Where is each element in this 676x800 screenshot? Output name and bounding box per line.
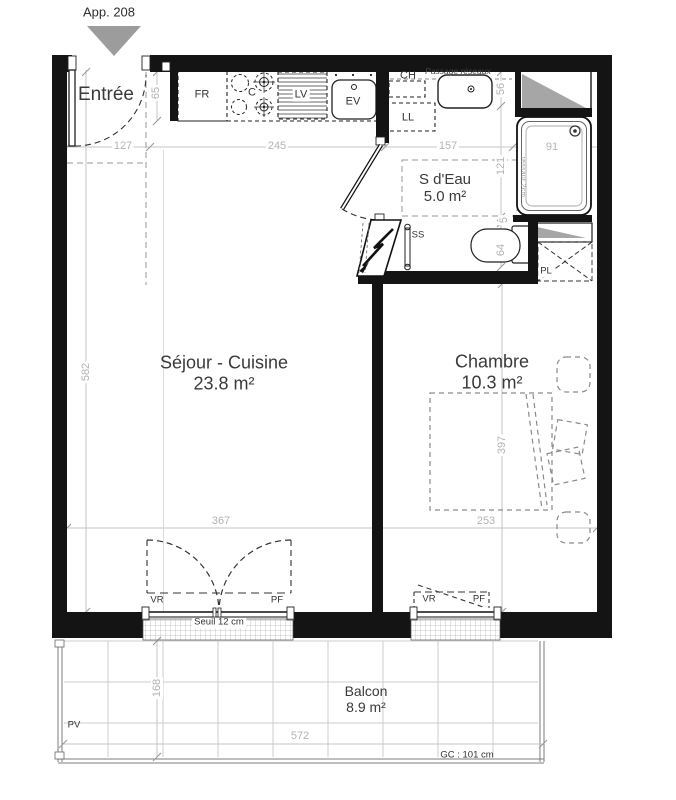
door-leaf xyxy=(69,70,75,146)
closet-label: PL xyxy=(538,267,554,278)
pillow xyxy=(553,420,588,455)
dim-245: 245 xyxy=(266,140,288,152)
door-jamb xyxy=(142,56,150,70)
shutter-label: VR xyxy=(422,595,435,606)
bathroom-door xyxy=(342,137,401,276)
threshold xyxy=(411,619,500,640)
door-hinge xyxy=(376,137,385,145)
door-jamb xyxy=(68,56,76,70)
dim-65: 65 xyxy=(150,85,162,101)
room-area: 10.3 m² xyxy=(455,372,529,393)
plan-drawing xyxy=(0,0,676,800)
room-name: S d'Eau xyxy=(419,171,471,188)
water-heater-label: CH xyxy=(400,70,416,83)
room-label-sejour: Séjour - Cuisine 23.8 m² xyxy=(160,352,288,393)
balcony-railing xyxy=(55,640,544,763)
entrance-arrow-icon xyxy=(87,26,141,56)
towel-radiator xyxy=(405,224,411,270)
washing-machine-label: LL xyxy=(402,112,414,125)
french-window-label: PF xyxy=(473,595,485,606)
door-leaf xyxy=(342,145,381,209)
passage-reseaux-label: Passage réseaux xyxy=(425,67,491,77)
apartment-number: App. 208 xyxy=(83,6,135,21)
bed xyxy=(430,393,587,510)
shower-step-label: ressaut 2cm xyxy=(519,157,526,198)
dim-121: 121 xyxy=(495,155,507,177)
dim-64: 64 xyxy=(495,242,507,258)
nightstand xyxy=(557,357,590,392)
pillow xyxy=(547,447,585,485)
dim-5: 5 xyxy=(498,215,510,225)
room-name: Séjour - Cuisine xyxy=(160,352,288,373)
threshold-label: Seuil 12 cm xyxy=(192,618,246,629)
room-name: Chambre xyxy=(455,351,529,372)
dim-397: 397 xyxy=(496,434,508,456)
french-window-label: PF xyxy=(271,596,283,607)
room-label-entree: Entrée xyxy=(78,84,134,106)
door-swing xyxy=(342,209,378,220)
pv-label: PV xyxy=(68,721,81,732)
dim-157: 157 xyxy=(437,140,459,152)
dishwasher-label: LV xyxy=(293,89,310,102)
shower xyxy=(517,117,591,215)
towel-radiator-label: SS xyxy=(412,231,425,242)
room-label-balcon: Balcon 8.9 m² xyxy=(345,683,388,715)
room-area: 8.9 m² xyxy=(345,699,388,715)
shutter-label: VR xyxy=(150,596,163,607)
duct-box-small xyxy=(533,223,592,242)
dim-91: 91 xyxy=(544,141,560,153)
nightstands xyxy=(557,357,590,543)
room-name: Balcon xyxy=(345,683,388,699)
dim-582: 582 xyxy=(80,361,92,383)
dim-367: 367 xyxy=(210,515,232,527)
dim-56: 56 xyxy=(495,81,507,97)
guardrail-label: GC : 101 cm xyxy=(440,751,493,762)
duct-box-top xyxy=(519,71,591,112)
dim-168: 168 xyxy=(151,677,163,699)
fridge-label: FR xyxy=(195,89,210,102)
sink-label: EV xyxy=(346,96,361,109)
cooktop-label: C xyxy=(248,87,256,100)
door-jamb xyxy=(162,62,170,71)
dim-127: 127 xyxy=(112,140,134,152)
room-label-sdeau: S d'Eau 5.0 m² xyxy=(419,171,471,206)
floor-plan: App. 208 Entrée Séjour - Cuisine 23.8 m²… xyxy=(0,0,676,800)
dim-572: 572 xyxy=(289,730,311,742)
room-area: 5.0 m² xyxy=(419,188,471,205)
room-label-chambre: Chambre 10.3 m² xyxy=(455,351,529,392)
dim-253: 253 xyxy=(475,515,497,527)
room-area: 23.8 m² xyxy=(160,373,288,394)
washbasin xyxy=(438,75,492,108)
